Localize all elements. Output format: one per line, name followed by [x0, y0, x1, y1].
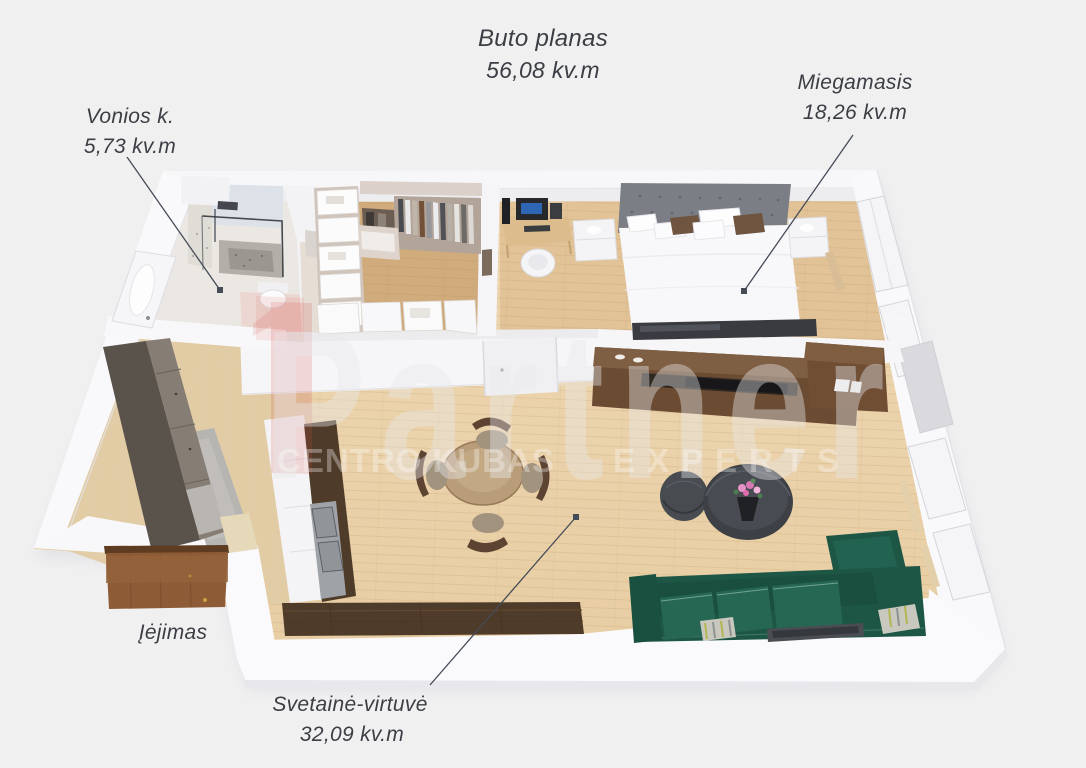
svg-text:5,73 kv.m: 5,73 kv.m	[84, 135, 176, 158]
svg-text:Vonios k.: Vonios k.	[86, 105, 174, 128]
svg-text:Svetainė-virtuvė: Svetainė-virtuvė	[272, 693, 427, 716]
svg-text:Partner: Partner	[264, 287, 899, 523]
svg-text:56,08 kv.m: 56,08 kv.m	[486, 57, 600, 83]
svg-text:CENTRO KUBAS: CENTRO KUBAS	[277, 442, 555, 479]
svg-text:Buto planas: Buto planas	[478, 25, 608, 52]
svg-text:Miegamasis: Miegamasis	[797, 71, 912, 94]
svg-text:Įėjimas: Įėjimas	[138, 621, 208, 644]
svg-text:32,09 kv.m: 32,09 kv.m	[300, 723, 404, 746]
svg-text:EXPERTS: EXPERTS	[613, 442, 851, 479]
svg-text:18,26 kv.m: 18,26 kv.m	[803, 101, 907, 124]
